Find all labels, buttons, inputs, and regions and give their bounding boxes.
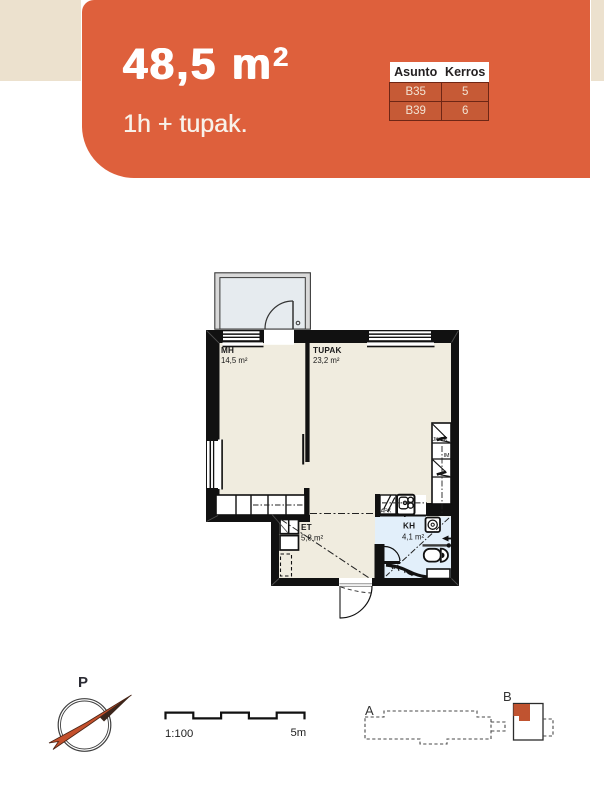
svg-text:P: P xyxy=(78,674,88,691)
svg-text:5m: 5m xyxy=(291,727,307,739)
svg-text:14,5 m²: 14,5 m² xyxy=(221,356,248,365)
svg-text:ET: ET xyxy=(301,523,312,532)
svg-text:5,8 m²: 5,8 m² xyxy=(301,534,323,543)
svg-text:4,1 m²: 4,1 m² xyxy=(402,533,424,542)
svg-text:1:100: 1:100 xyxy=(165,728,193,740)
svg-text:TUPAK: TUPAK xyxy=(313,346,342,355)
svg-text:MH: MH xyxy=(221,346,234,355)
svg-text:IM: IM xyxy=(444,453,450,459)
svg-text:23,2 m²: 23,2 m² xyxy=(313,356,340,365)
svg-text:A: A xyxy=(365,703,374,718)
svg-text:B: B xyxy=(503,689,512,704)
svg-text:KH: KH xyxy=(403,522,415,531)
svg-text:JK/PK: JK/PK xyxy=(433,437,448,443)
svg-text:APK: APK xyxy=(381,509,392,515)
